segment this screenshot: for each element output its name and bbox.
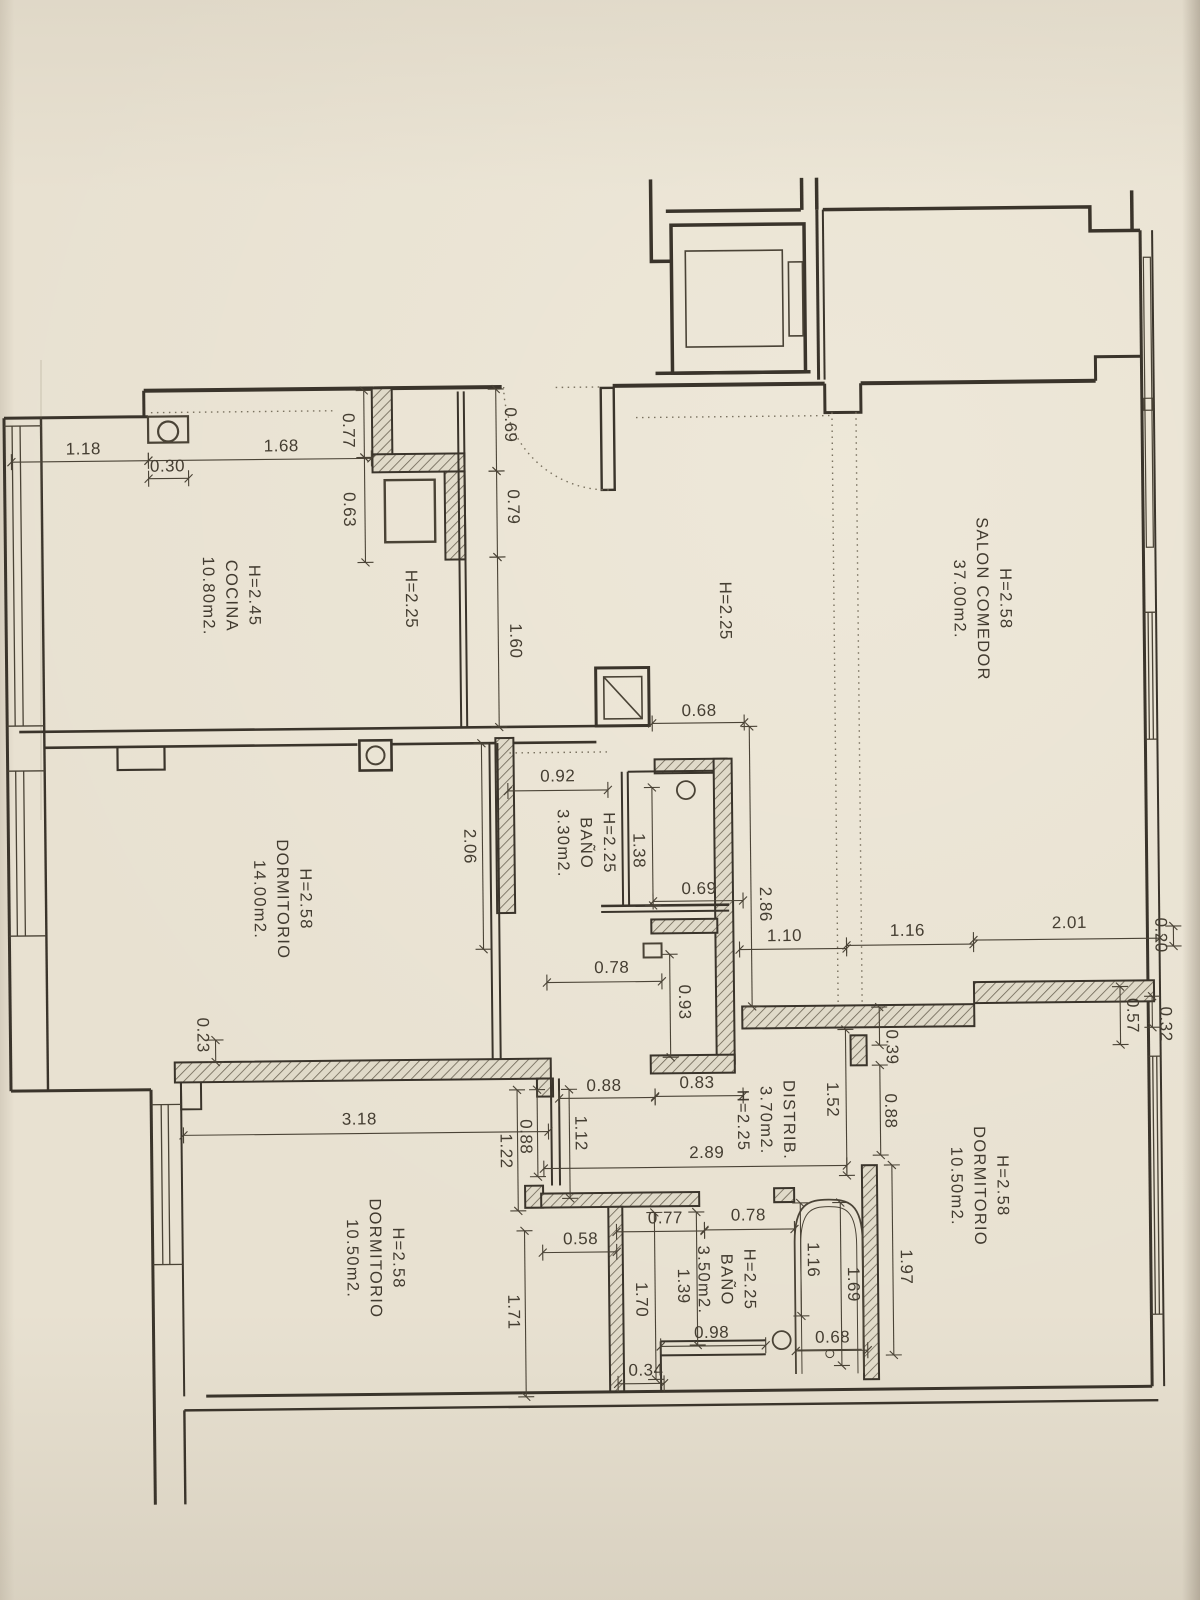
kitchen-window (12, 426, 23, 726)
entry-door-swing (504, 386, 609, 491)
window-glazing (1148, 612, 1153, 739)
elevator-cab (685, 250, 783, 347)
bedroom2-window (1153, 1056, 1160, 1314)
left-facade (4, 417, 151, 1091)
bedroom3-window (161, 1105, 170, 1265)
shaft-diagonal (604, 677, 642, 719)
column-symbol (366, 746, 384, 764)
toilet-symbol (773, 1331, 791, 1349)
washbasin-symbol (677, 781, 695, 799)
kitchen-appliance-symbol (158, 421, 178, 441)
elevator-door (788, 262, 803, 336)
kitchen-bedroom1-divider (19, 726, 647, 775)
right-facade (1140, 230, 1164, 1386)
kitchen-shaft (372, 387, 468, 728)
floor-plan-drawing (0, 0, 1200, 1600)
top-walls (3, 356, 1142, 496)
scanned-paper: 1.180.301.680.770.630.690.791.600.680.92… (0, 0, 1200, 1600)
bedroom1-window (16, 771, 26, 936)
bathtub (794, 1199, 864, 1374)
entry-door-leaf (601, 388, 615, 490)
stairwell-elevator (651, 174, 1142, 381)
salon-south-wall (742, 980, 1154, 1028)
